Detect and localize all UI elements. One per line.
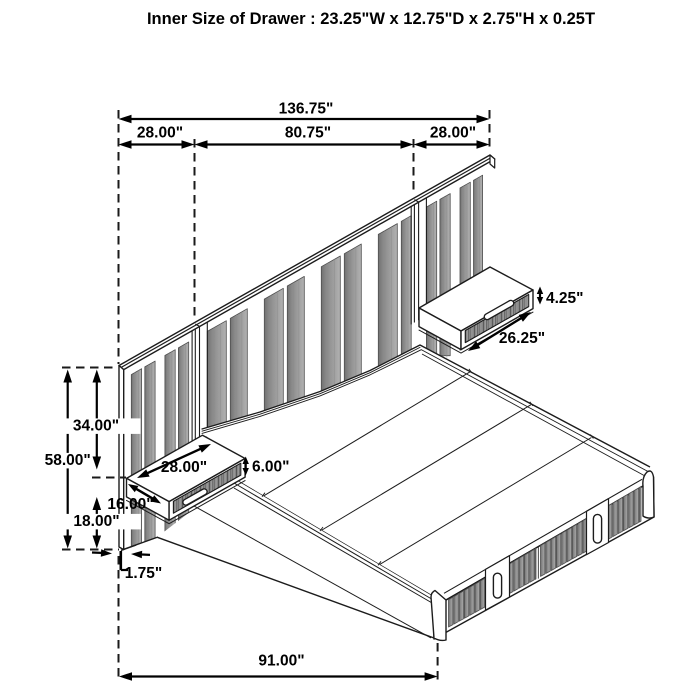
svg-text:91.00": 91.00" [258, 653, 304, 670]
svg-text:18.00": 18.00" [73, 513, 119, 530]
svg-text:58.00": 58.00" [45, 452, 91, 469]
svg-text:28.00": 28.00" [430, 125, 476, 142]
svg-text:136.75": 136.75" [279, 101, 334, 118]
svg-text:16.00": 16.00" [107, 496, 153, 513]
svg-text:26.25": 26.25" [499, 330, 545, 347]
svg-text:Inner Size of Drawer : 23.25"W: Inner Size of Drawer : 23.25"W x 12.75"D… [147, 10, 595, 28]
svg-text:34.00": 34.00" [73, 418, 119, 435]
svg-text:28.00": 28.00" [137, 125, 183, 142]
svg-text:6.00": 6.00" [252, 459, 290, 476]
svg-text:1.75": 1.75" [125, 565, 163, 582]
svg-text:28.00": 28.00" [161, 459, 207, 476]
svg-text:4.25": 4.25" [546, 290, 584, 307]
svg-text:80.75": 80.75" [285, 125, 331, 142]
